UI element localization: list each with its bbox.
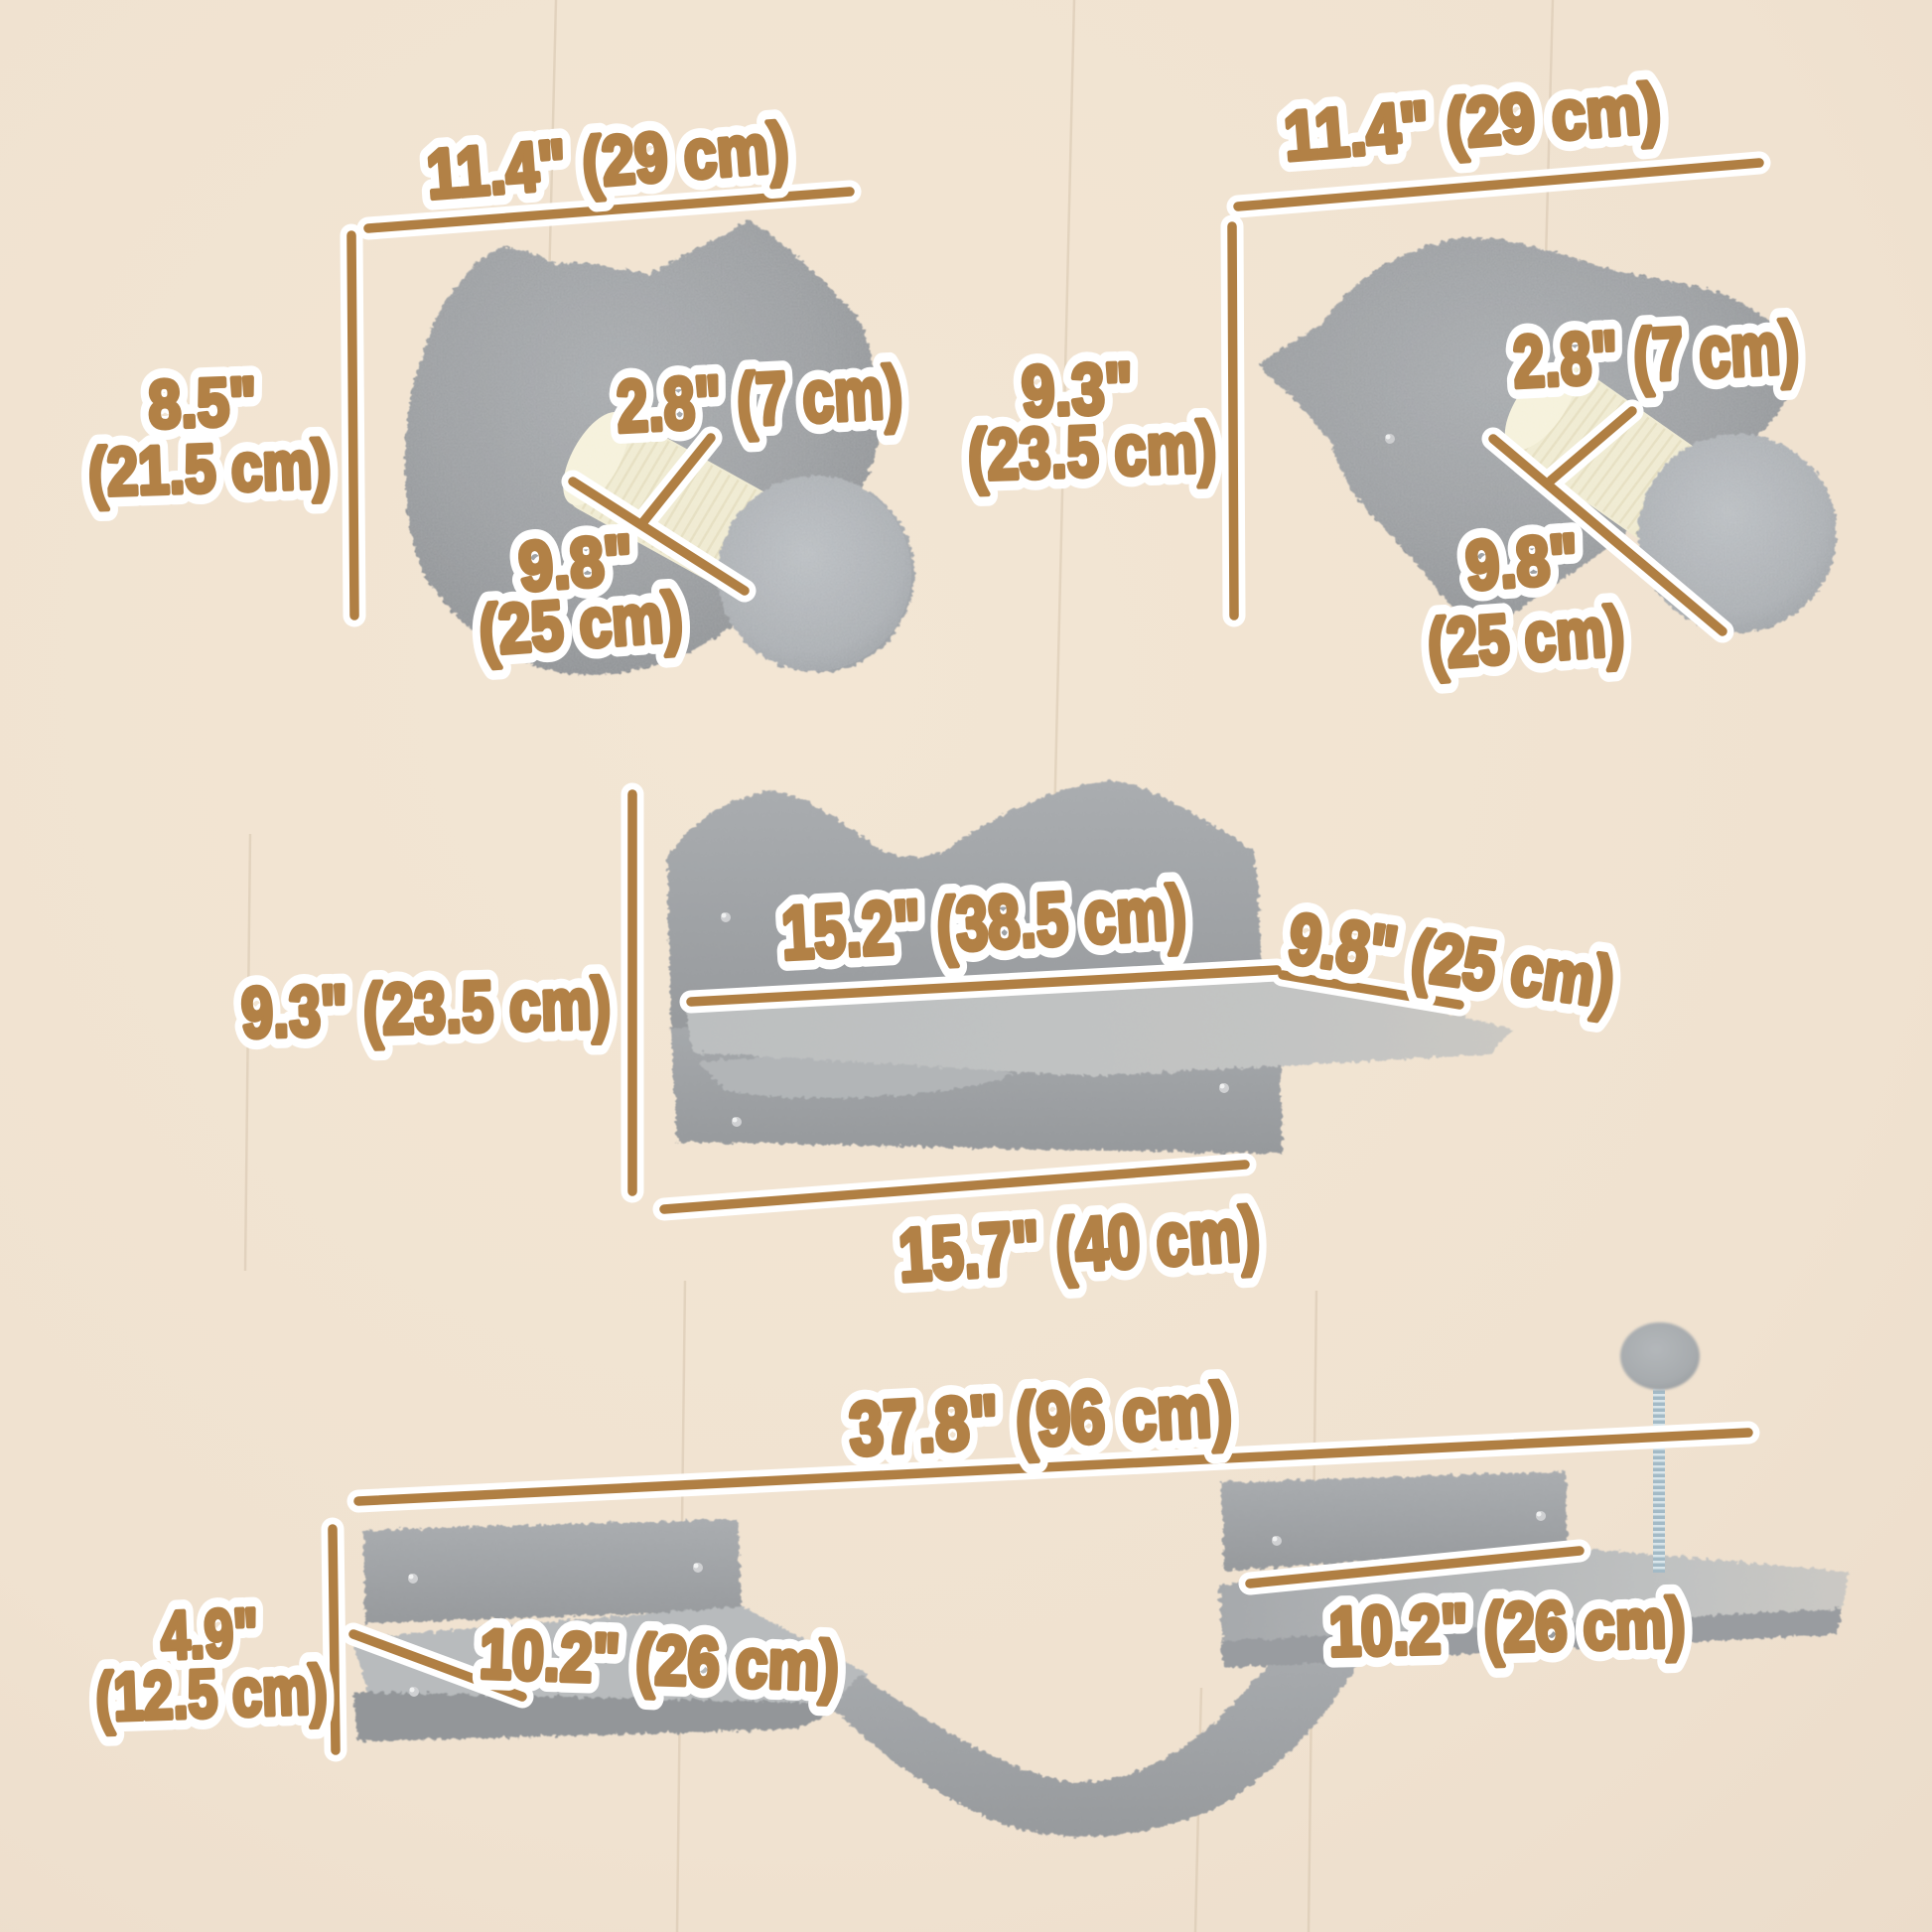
svg-text:9.8": 9.8" [1463, 519, 1581, 605]
svg-text:10.2" (26 cm): 10.2" (26 cm) [479, 1615, 841, 1706]
svg-text:(21.5 cm): (21.5 cm) [87, 427, 333, 510]
svg-text:(12.5 cm): (12.5 cm) [94, 1652, 329, 1735]
svg-text:(25 cm): (25 cm) [1426, 592, 1627, 683]
svg-text:9.3" (23.5 cm): 9.3" (23.5 cm) [240, 964, 612, 1053]
svg-text:2.8" (7 cm): 2.8" (7 cm) [1511, 306, 1801, 403]
svg-text:2.8" (7 cm): 2.8" (7 cm) [615, 350, 904, 448]
svg-text:(23.5 cm): (23.5 cm) [967, 408, 1218, 496]
svg-text:10.2" (26 cm): 10.2" (26 cm) [1328, 1584, 1687, 1670]
svg-text:(25 cm): (25 cm) [477, 578, 685, 669]
